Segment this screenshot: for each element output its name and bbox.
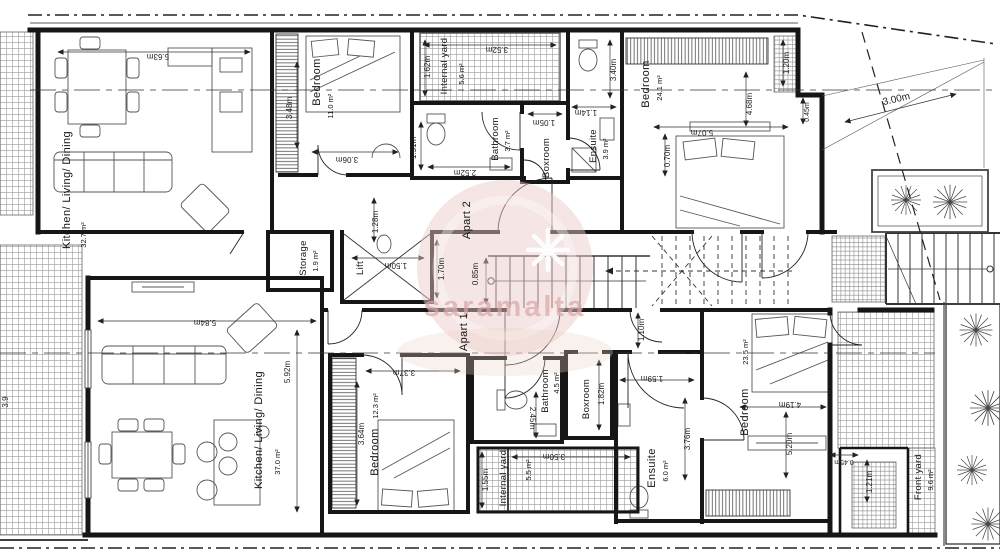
dim-a1-box-d: 1.82m [597,383,606,406]
dim-a2-kld-w: 5.63m [147,52,170,61]
dim-a1-bed2-d: 5.20m [785,433,794,456]
dim-a2-ens-w: 1.14m [575,108,598,117]
side-yard-top-hatch [0,32,33,215]
apart1-internal-yard-area: 5.5 m² [524,459,533,481]
dim-a1-kld-w: 5.84m [194,318,217,327]
back-planter [872,170,988,232]
dim-a2-bed2-off: 0.70m [663,145,672,168]
storage-door [230,232,244,254]
apart1-door-label: Apart 1 [458,313,470,351]
apart1-sofa [102,346,226,384]
dim-a2-bed2-s: 0.45m [804,102,811,122]
apart1-ensuite-label: Ensuite [646,448,658,488]
dim-a1-ens-d: 3.76m [683,428,692,451]
apart2-bedroom1-area: 11.0 m² [326,93,335,118]
apart1-bed2 [748,314,832,450]
watermark: saramalta [397,180,613,376]
apart1-bedroom1-wardrobe [332,358,356,508]
apart1-bathroom-toilet-icon [497,390,527,410]
dim-corridor: 1.28m [371,211,380,234]
dim-a2-bed2-closet: 1.20m [782,52,791,75]
apart2-kitchen-area: 32.7 m² [79,222,88,248]
front-yard-area: 9.6 m² [926,469,935,491]
watermark-text: saramalta [424,291,586,323]
apart1-bedroom2-area: 23.5 m² [741,339,750,365]
stair-landing-door-2 [762,232,808,278]
apart1-bedroom1-area: 12.3 m² [371,393,380,419]
side-yard-bottom-hatch [0,245,82,535]
dim-stair-w: 0.85m [471,263,480,286]
dim-a1-kld-d: 5.92m [283,361,292,384]
apart2-bathroom-toilet-icon [427,114,445,145]
dim-side-yard: 3.9 [1,396,10,408]
apart1-internal-yard-label: Internal yard [498,450,509,507]
apart2-bathroom-label: Bathroom [490,117,501,161]
dim-a2-bed2-d: 4.68m [745,93,754,116]
apart2-bedroom2-label: Bedroom [640,60,652,107]
dim-a2-bed1-w: 3.06m [336,155,359,164]
apart2-bedroom1-label: Bedroom [311,58,323,105]
apart2-internal-yard-area: 5.6 m² [457,63,466,85]
asterisk-icon [528,230,568,270]
dim-a1-ens-w: 1.59m [641,374,664,383]
apart1-bedroom2-wardrobe [706,490,790,516]
apart2-boxroom-label: Boxroom [541,138,552,178]
apart1-kitchen-door [328,310,362,344]
dim-backyard: 3.00m [882,91,912,108]
storage-area: 1.9 m² [311,250,320,272]
front-yard-label: Front yard [913,454,924,500]
storage-label: Storage [298,240,309,275]
front-yard-hatch-upper [838,312,934,448]
dim-a1-bed2-s: 0.45m [834,458,854,465]
dim-a2-bed2-w: 5.07m [691,128,714,137]
apart1-kitchen-area: 37.0 m² [273,449,282,475]
apart2-bathroom-door [482,112,520,150]
floor-plan-page: saramalta Kitchen/ Living/ Dining 32.7 m… [0,0,1000,550]
apart2-internal-yard-label: Internal yard [439,38,450,95]
apart2-ensuite-toilet-icon [579,40,597,71]
dim-a1-bed1-d: 3.64m [357,423,366,446]
dim-lift-d: 1.70m [437,258,446,281]
apart2-ensuite-area: 3.9 m² [601,138,610,160]
dim-a1-bed1-w: 3.37m [393,368,416,377]
dim-a2-box-w: 1.05m [533,118,556,127]
dim-front-yard-w: 1.21m [865,471,874,494]
apart2-bedroom2-area: 24.1 m² [655,75,664,101]
dim-a1-bed2-w: 4.19m [779,400,802,409]
apart1-armchair [226,302,279,354]
dim-a1-yard-d: 1.55m [481,469,490,492]
apart1-boxroom-label: Boxroom [581,379,592,419]
external-stair [886,233,1000,304]
side-planter [946,304,1000,544]
apart2-bathroom-area: 3.7 m² [503,130,512,152]
dim-a2-ens-d: 3.40m [609,59,618,82]
porch-hatch [852,462,896,528]
apart2-bedroom2-wardrobe [626,38,768,64]
dim-a1-bath-d: 2.45m [528,407,537,430]
apart2-door-label: Apart 2 [461,201,473,239]
entry-landing-hatch [832,236,886,302]
dim-a2-yard-d: 1.62m [423,56,432,79]
apart1-bedroom1-label: Bedroom [369,428,381,475]
apart2-armchair [180,183,231,234]
apart2-ensuite-label: Ensuite [588,129,599,163]
lift-label: Lift [355,261,366,275]
dim-a1-yard-w: 3.50m [543,452,566,461]
apart1-kitchen-island [197,420,260,505]
apart1-bathroom-label: Bathroom [540,369,551,413]
apart1-bedroom2-label: Bedroom [739,388,751,435]
apart1-hall-door [630,310,662,342]
dim-a2-bath-w: 2.52m [454,168,477,177]
apart1-bedroom2-door [702,398,744,440]
dim-a2-yard-w: 3.52m [486,45,509,54]
apart1-bed1 [378,420,454,512]
apart1-bathroom-area: 4.5 m² [552,372,561,394]
dim-a2-bath-d: 1.51m [409,137,418,160]
apart1-kitchen-label: Kitchen/ Living/ Dining [253,371,265,489]
apart1-ensuite-area: 6.0 m² [661,460,670,482]
dim-a2-bed1-d: 3.48m [285,97,294,120]
apart2-kitchen-counter [168,48,252,152]
stair-landing-door-1 [692,232,742,282]
apart1-dining-set [99,419,185,491]
dim-lift-w: 1.50m [385,261,408,270]
apart2-kitchen-label: Kitchen/ Living/ Dining [61,131,73,249]
core-stairs-upper-dashed [606,236,792,306]
dim-a1-ens-door: 1.10m [637,319,646,342]
floor-plan-svg: saramalta Kitchen/ Living/ Dining 32.7 m… [0,0,1000,550]
